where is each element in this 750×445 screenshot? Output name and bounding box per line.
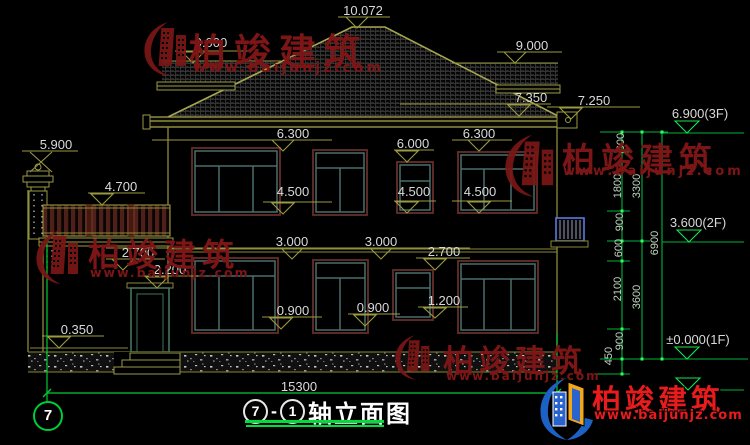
- windows-first-floor: [192, 258, 538, 333]
- entry-door: [127, 283, 173, 352]
- title-underline: [246, 425, 384, 427]
- window: [192, 258, 278, 333]
- side-balcony-railing: [551, 218, 588, 247]
- axis-bubble-7: 7: [33, 401, 63, 431]
- window: [393, 270, 433, 320]
- window: [313, 260, 368, 333]
- ground: [28, 352, 557, 374]
- window: [313, 150, 367, 215]
- title-underline: [245, 420, 384, 423]
- windows-second-floor: [192, 148, 537, 215]
- title-text: 轴立面图: [308, 394, 412, 429]
- roof: [143, 27, 577, 129]
- window: [458, 261, 538, 333]
- drawing-title: 7 - 1 轴立面图: [243, 394, 412, 429]
- cad-elevation-screenshot: 10.0729.0009.0007.3507.2506.900(3F)5.900…: [0, 0, 750, 445]
- title-separator: -: [271, 401, 277, 422]
- company-logo: [540, 378, 593, 440]
- logo-website-text: www.baijunjz.com: [594, 408, 743, 423]
- window: [192, 148, 280, 215]
- dimension-chain: [597, 121, 748, 390]
